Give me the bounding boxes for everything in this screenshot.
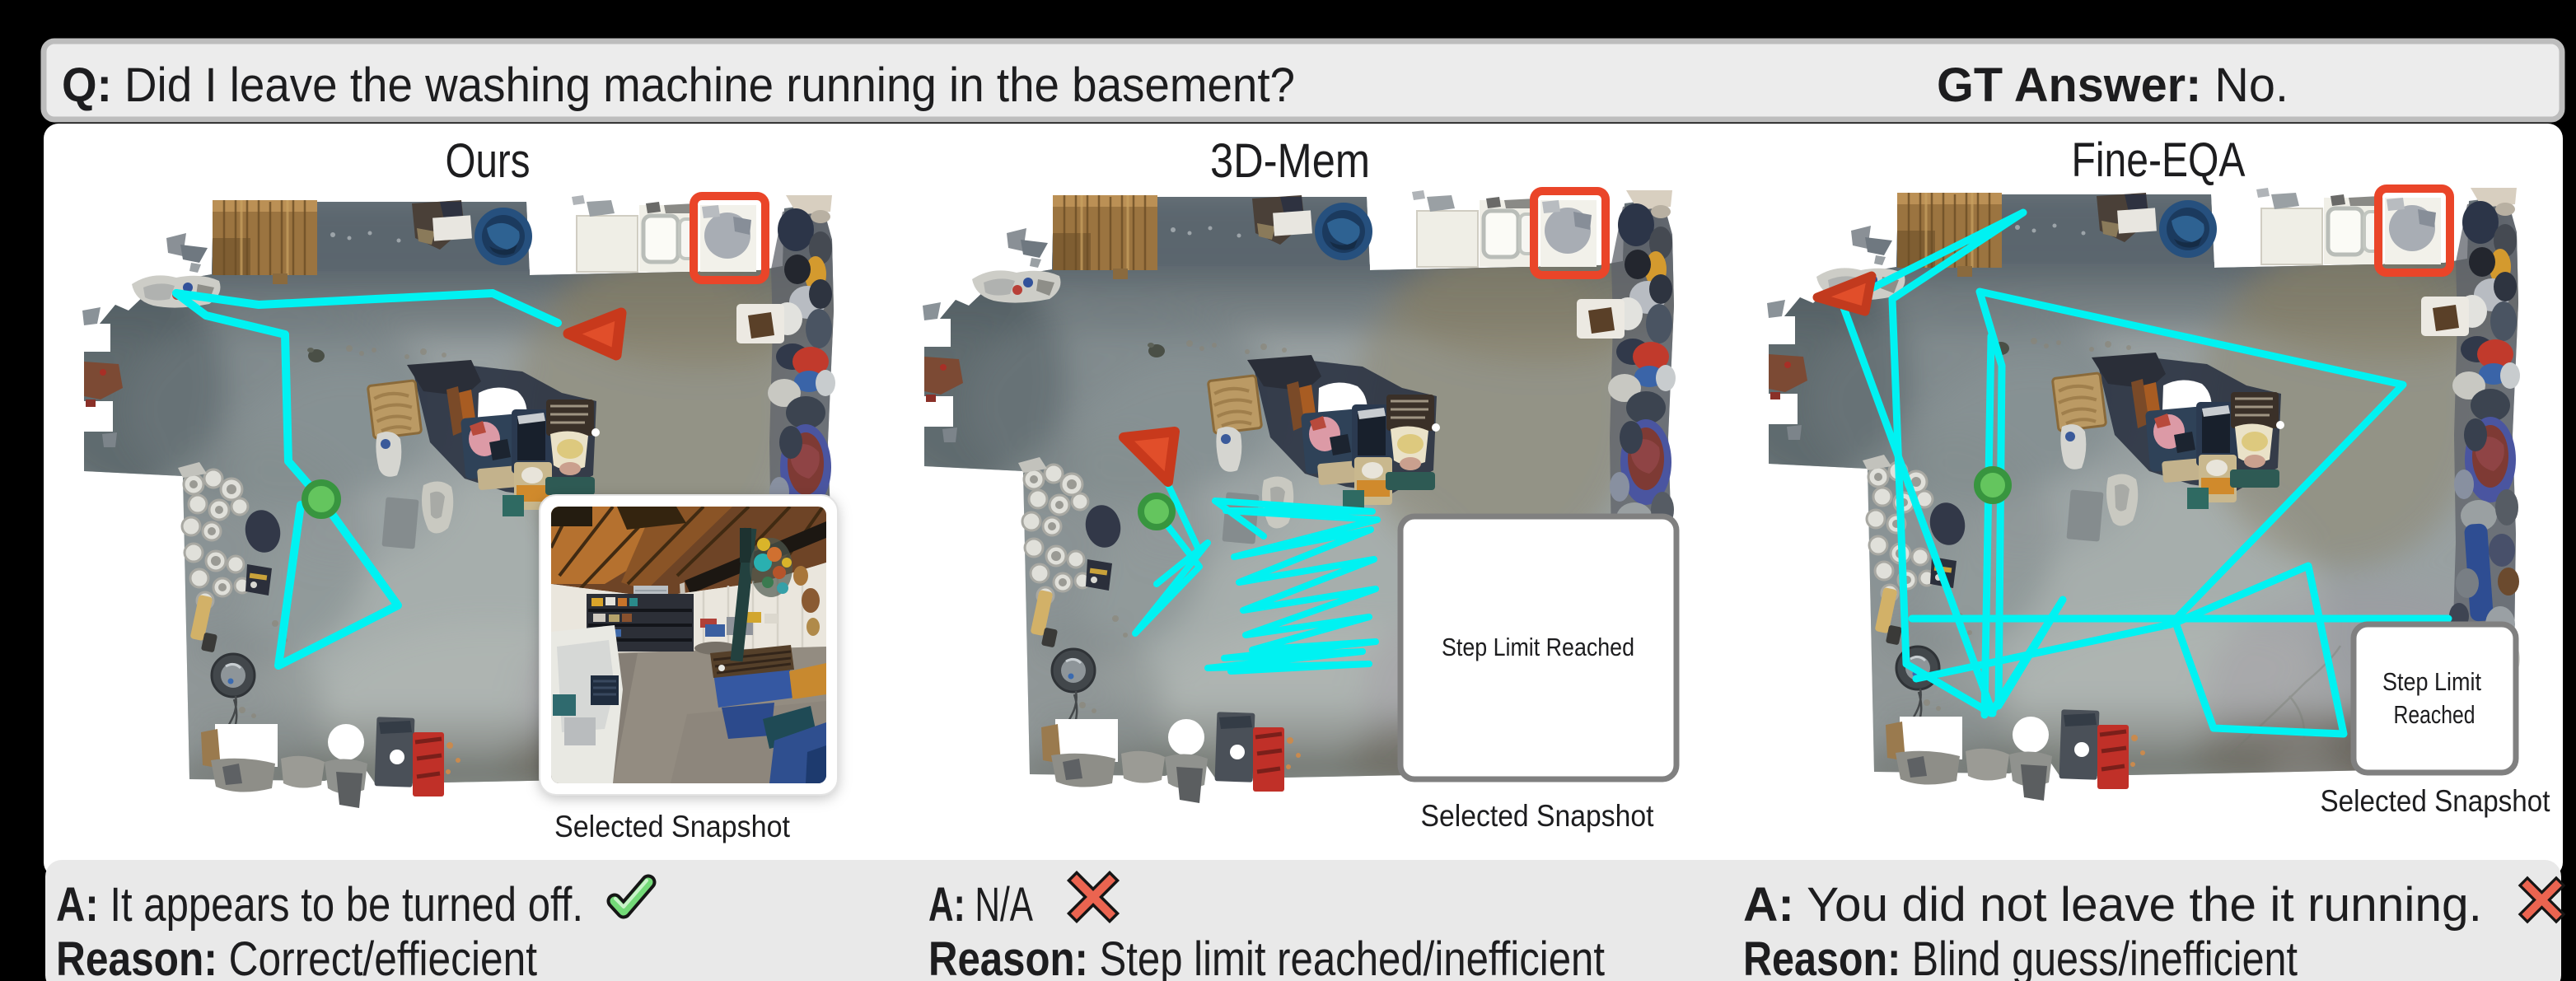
svg-text:Fine-EQA: Fine-EQA — [2072, 133, 2246, 187]
svg-text:GT Answer: No.: GT Answer: No. — [1937, 58, 2288, 112]
svg-text:A: It appears to be turned off: A: It appears to be turned off. — [56, 878, 583, 932]
svg-text:Ours: Ours — [446, 134, 531, 188]
svg-text:Q: Did I leave the washing mac: Q: Did I leave the washing machine runni… — [62, 58, 1295, 112]
svg-text:A: N/A: A: N/A — [928, 878, 1033, 932]
svg-text:Reason: Blind guess/inefficien: Reason: Blind guess/inefficient — [1743, 932, 2298, 981]
svg-text:Reached: Reached — [2394, 700, 2475, 729]
svg-text:A: You did not leave the it ru: A: You did not leave the it running. — [1743, 878, 2482, 932]
svg-text:Selected Snapshot: Selected Snapshot — [2321, 784, 2551, 818]
svg-text:3D-Mem: 3D-Mem — [1210, 134, 1370, 188]
svg-text:Step Limit Reached: Step Limit Reached — [1442, 633, 1634, 661]
svg-text:Reason: Correct/effiecient: Reason: Correct/effiecient — [56, 932, 537, 981]
svg-text:Selected Snapshot: Selected Snapshot — [1421, 799, 1655, 833]
svg-text:Step Limit: Step Limit — [2382, 667, 2481, 696]
svg-text:Selected Snapshot: Selected Snapshot — [554, 810, 791, 843]
svg-text:Reason: Step limit reached/ine: Reason: Step limit reached/inefficient — [928, 932, 1605, 981]
